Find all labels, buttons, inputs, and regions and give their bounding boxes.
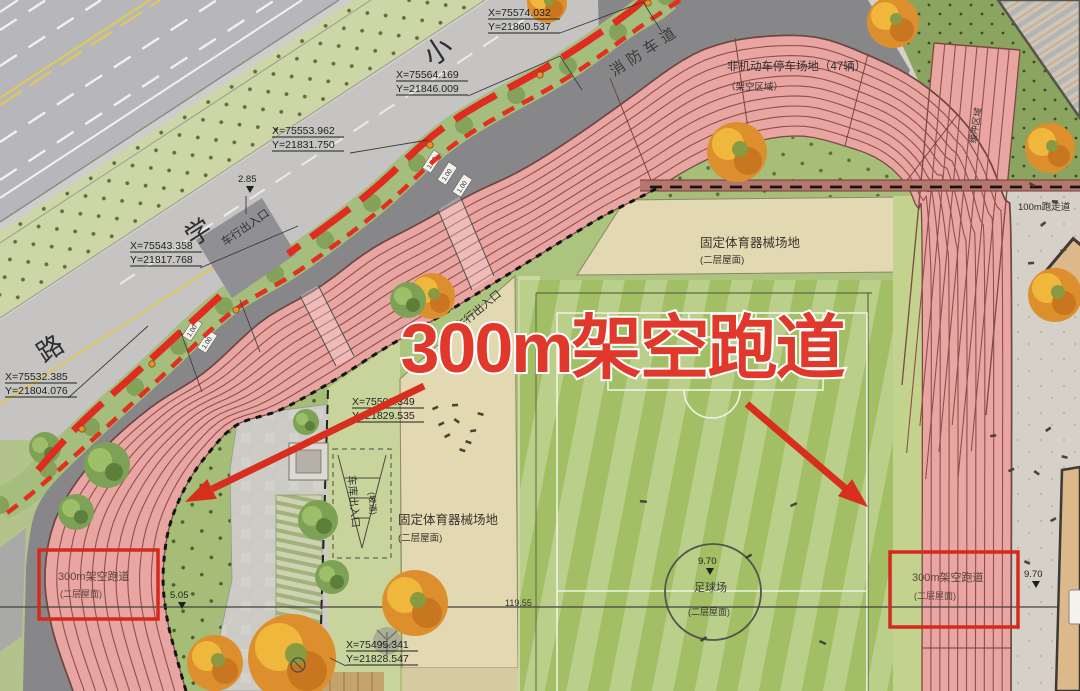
svg-text:X=75543.358: X=75543.358 <box>130 240 193 252</box>
svg-text:（架空区域）: （架空区域） <box>726 81 783 93</box>
svg-text:Y=21831.750: Y=21831.750 <box>272 139 335 151</box>
svg-text:(坡道): (坡道) <box>367 492 379 516</box>
svg-text:5.05: 5.05 <box>170 590 189 601</box>
svg-text:Y=21860.537: Y=21860.537 <box>488 21 551 33</box>
svg-text:9.70: 9.70 <box>1024 569 1043 580</box>
svg-text:X=75564.169: X=75564.169 <box>396 69 459 81</box>
svg-text:119.55: 119.55 <box>505 598 532 608</box>
svg-text:300m架空跑道: 300m架空跑道 <box>58 569 130 583</box>
svg-text:X=75495.341: X=75495.341 <box>346 639 409 651</box>
svg-text:Y=21817.768: Y=21817.768 <box>130 254 193 266</box>
svg-text:X=75532.385: X=75532.385 <box>5 371 68 383</box>
svg-text:2.85: 2.85 <box>238 174 257 185</box>
svg-text:固定体育器械场地: 固定体育器械场地 <box>398 512 499 527</box>
svg-text:(二层屋面): (二层屋面) <box>914 591 956 601</box>
svg-text:300m架空跑道: 300m架空跑道 <box>912 570 984 584</box>
svg-text:Y=21828.547: Y=21828.547 <box>346 653 409 665</box>
svg-text:足球场: 足球场 <box>694 580 727 594</box>
svg-text:(二层屋面): (二层屋面) <box>688 607 730 617</box>
svg-text:(二层屋面): (二层屋面) <box>60 589 102 599</box>
svg-text:X=75553.962: X=75553.962 <box>272 125 335 137</box>
svg-text:(二层屋面): (二层屋面) <box>398 533 442 544</box>
svg-text:固定体育器械场地: 固定体育器械场地 <box>700 235 801 250</box>
svg-text:(二层屋面): (二层屋面) <box>700 255 744 266</box>
svg-text:Y=21846.009: Y=21846.009 <box>396 83 459 95</box>
svg-text:9.70: 9.70 <box>698 556 717 567</box>
svg-text:Y=21804.076: Y=21804.076 <box>5 385 68 397</box>
svg-text:X=75574.032: X=75574.032 <box>488 7 551 19</box>
svg-text:300m架空跑道: 300m架空跑道 <box>400 309 845 387</box>
svg-text:100m跑走道: 100m跑走道 <box>1018 201 1071 213</box>
svg-text:非机动车停车场地（47辆）: 非机动车停车场地（47辆） <box>727 59 866 73</box>
